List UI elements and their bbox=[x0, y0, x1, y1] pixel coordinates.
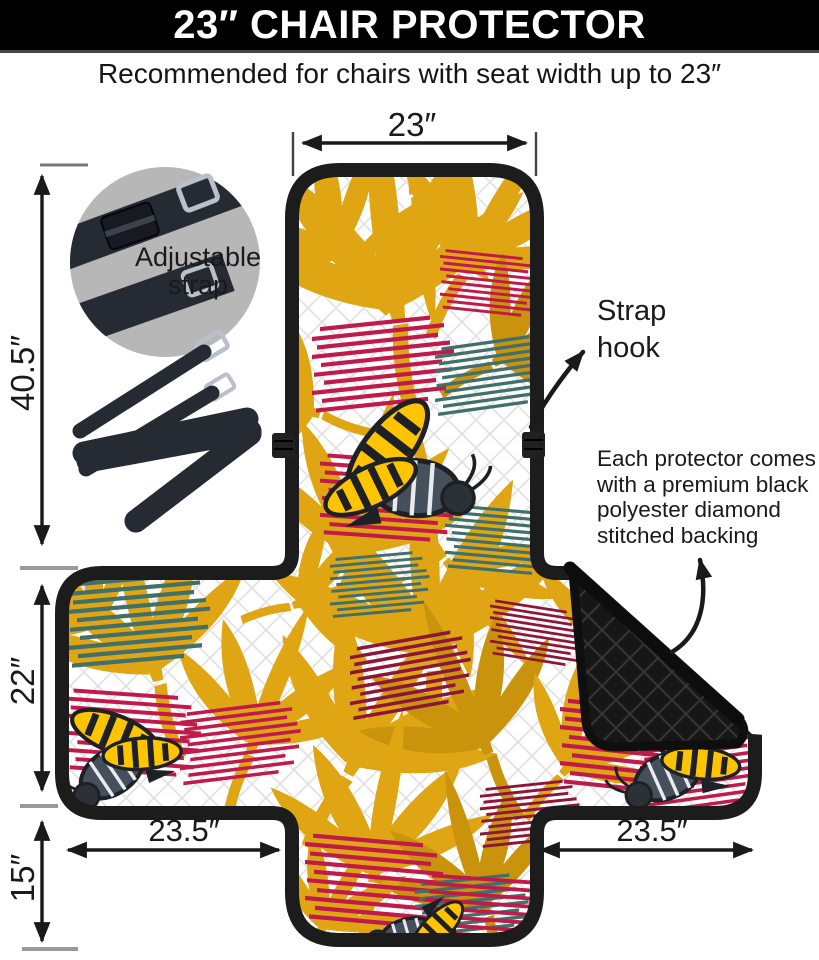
strap-tab-right bbox=[522, 432, 545, 458]
adjustable-strap-label: Adjustable strap bbox=[135, 243, 261, 299]
infographic-page: 23″ CHAIR PROTECTOR Recommended for chai… bbox=[0, 0, 819, 960]
dim-total-height-label: 40.5″ bbox=[4, 335, 42, 411]
dim-top-width-label: 23″ bbox=[388, 106, 436, 144]
strap-tab-left bbox=[272, 433, 295, 458]
dim-wing-height-label: 22″ bbox=[4, 657, 42, 705]
strap-bundle-graphic bbox=[80, 331, 250, 521]
backing-description: Each protector comes with a premium blac… bbox=[597, 446, 816, 548]
dim-left-wing-width-label: 23.5″ bbox=[148, 813, 219, 849]
dim-right-wing-width-label: 23.5″ bbox=[616, 813, 687, 849]
strap-hook-label: Strap hook bbox=[597, 293, 666, 367]
dim-skirt-height-label: 15″ bbox=[4, 854, 42, 902]
